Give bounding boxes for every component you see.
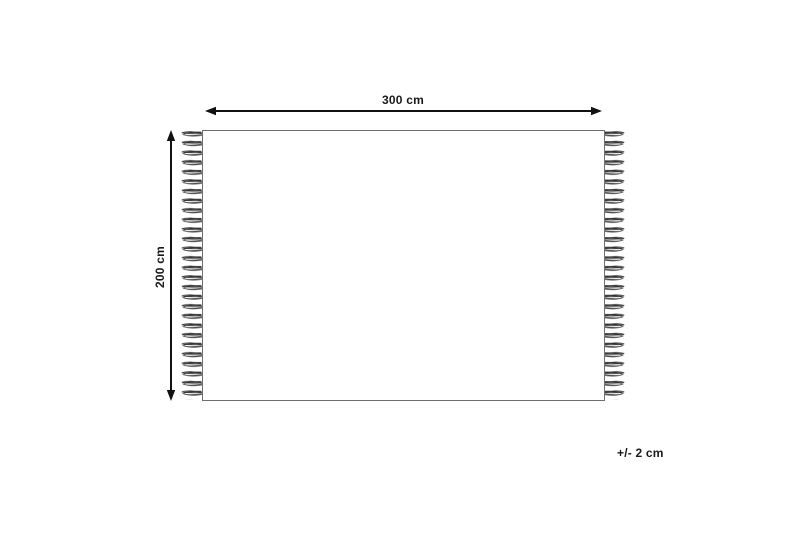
- arrowhead-left-icon: [205, 107, 216, 115]
- arrowhead-up-icon: [167, 130, 175, 141]
- width-dimension-arrow: [205, 107, 602, 115]
- tolerance-label: +/- 2 cm: [617, 446, 664, 460]
- fringe-right: [604, 131, 626, 400]
- rug-outline: [203, 131, 605, 401]
- rug-dimension-diagram: 300 cm 200 cm +/- 2 cm: [0, 0, 800, 533]
- diagram-canvas: [0, 0, 800, 533]
- arrowhead-right-icon: [591, 107, 602, 115]
- height-dimension-label: 200 cm: [153, 231, 169, 303]
- fringe-left: [180, 131, 202, 400]
- width-dimension-label: 300 cm: [205, 93, 601, 107]
- arrowhead-down-icon: [167, 390, 175, 401]
